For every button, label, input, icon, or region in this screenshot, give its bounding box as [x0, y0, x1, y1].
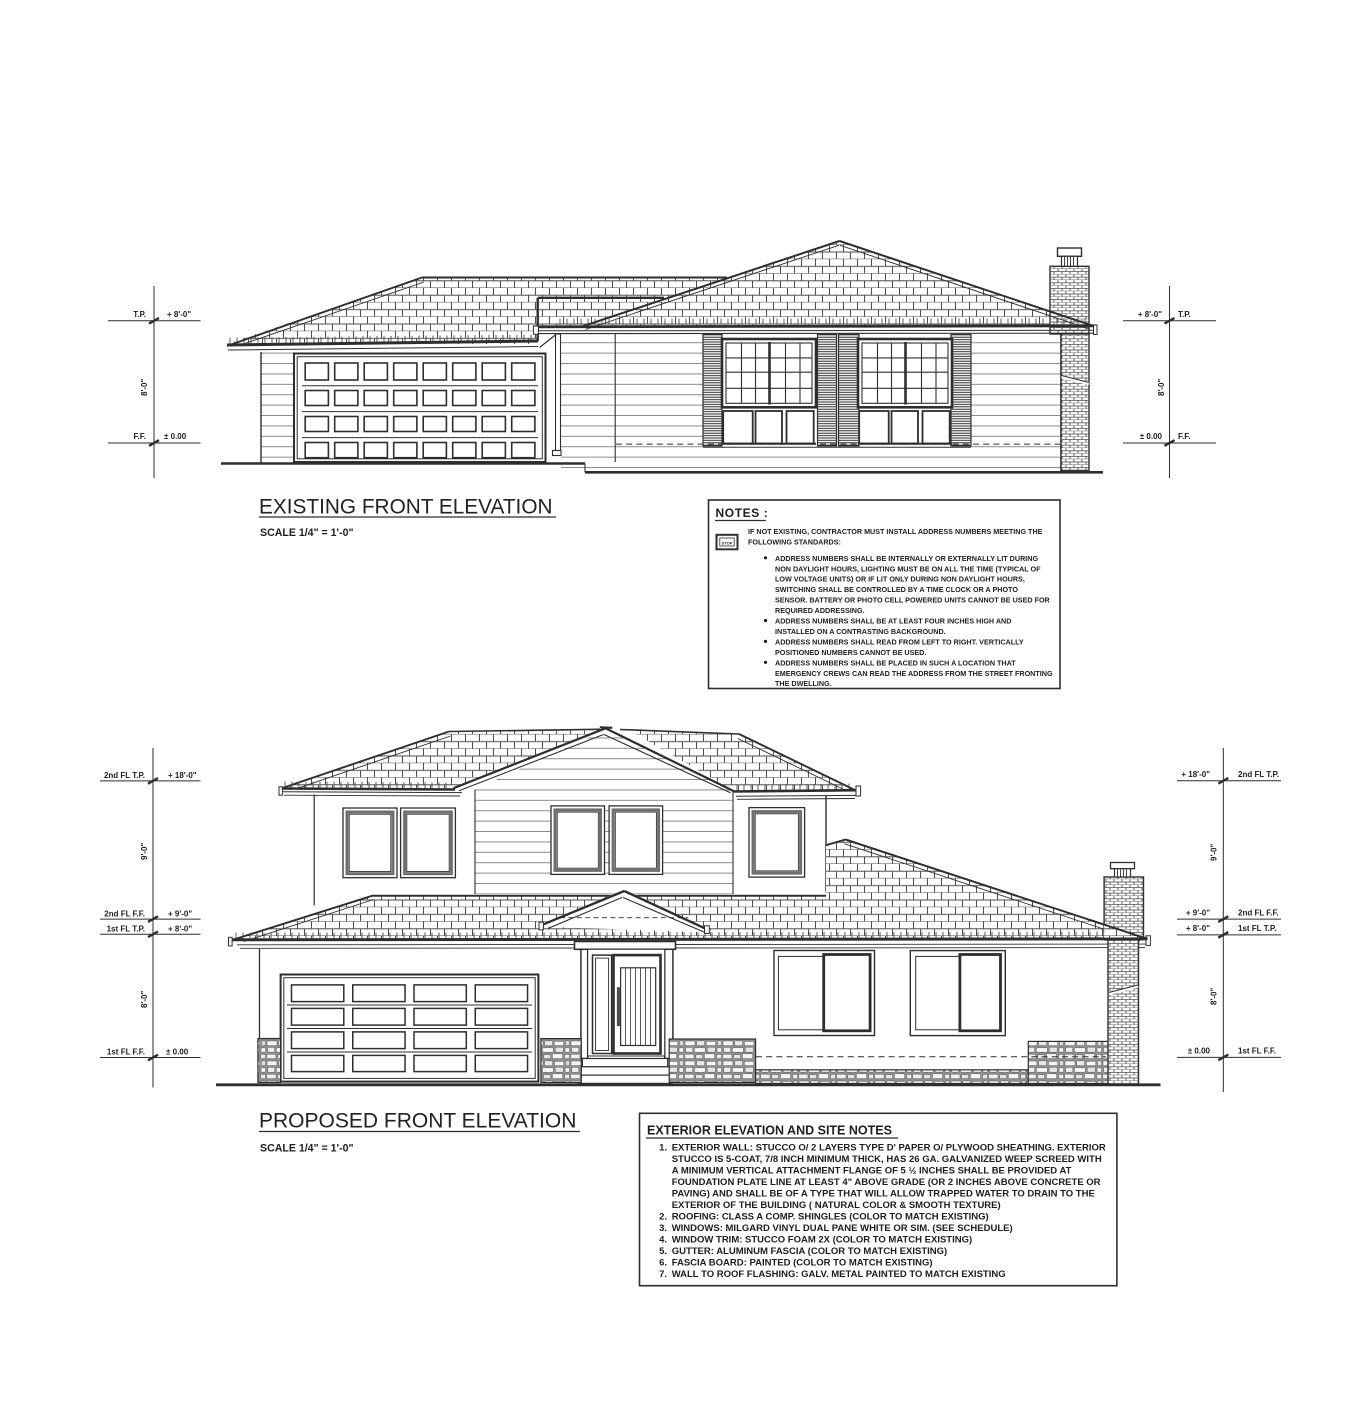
svg-text:+ 8'-0": + 8'-0": [168, 925, 192, 934]
svg-text:PROPOSED FRONT ELEVATION: PROPOSED FRONT ELEVATION: [259, 1109, 576, 1132]
svg-text:9'-0": 9'-0": [140, 843, 149, 860]
svg-text:LOW VOLTAGE UNITS) OR IF LIT O: LOW VOLTAGE UNITS) OR IF LIT ONLY DURING…: [775, 575, 1025, 584]
svg-text:STUCCO IS 5-COAT, 7/8 INCH MIN: STUCCO IS 5-COAT, 7/8 INCH MINIMUM THICK…: [672, 1154, 1102, 1165]
svg-text:ROOFING: CLASS A COMP. SHINGLE: ROOFING: CLASS A COMP. SHINGLES (COLOR T…: [672, 1211, 989, 1222]
svg-text:2nd FL T.P.: 2nd FL T.P.: [1238, 770, 1279, 779]
svg-text:EXTERIOR OF THE BUILDING ( NAT: EXTERIOR OF THE BUILDING ( NATURAL COLOR…: [672, 1200, 1001, 1211]
svg-text:WINDOWS: MILGARD VINYL DUAL PA: WINDOWS: MILGARD VINYL DUAL PANE WHITE O…: [672, 1223, 1013, 1234]
svg-text:9'-0": 9'-0": [1210, 844, 1219, 861]
svg-text:WALL TO ROOF FLASHING: GALV. M: WALL TO ROOF FLASHING: GALV. METAL PAINT…: [672, 1269, 1006, 1280]
svg-text:IF NOT EXISTING, CONTRACTOR MU: IF NOT EXISTING, CONTRACTOR MUST INSTALL…: [748, 527, 1043, 536]
svg-text:WINDOW TRIM: STUCCO FOAM 2X (C: WINDOW TRIM: STUCCO FOAM 2X (COLOR TO MA…: [672, 1234, 972, 1245]
svg-text:+ 18'-0": + 18'-0": [168, 771, 197, 780]
svg-text:POSITIONED NUMBERS CANNOT BE U: POSITIONED NUMBERS CANNOT BE USED.: [775, 648, 926, 657]
svg-text:SCALE 1/4" = 1'-0": SCALE 1/4" = 1'-0": [260, 527, 354, 539]
svg-text:ADDRESS NUMBERS SHALL BE AT LE: ADDRESS NUMBERS SHALL BE AT LEAST FOUR I…: [775, 617, 1011, 626]
svg-text:2nd FL T.P.: 2nd FL T.P.: [104, 771, 145, 780]
svg-text:REQUIRED ADDRESSING.: REQUIRED ADDRESSING.: [775, 606, 865, 615]
svg-text:THE DWELLING.: THE DWELLING.: [775, 679, 832, 688]
svg-text:5.: 5.: [659, 1246, 667, 1257]
svg-text:1st FL T.P.: 1st FL T.P.: [1238, 924, 1276, 933]
svg-text:NOTES :: NOTES :: [716, 506, 769, 520]
svg-text:SWITCHING SHALL BE CONTROLLED: SWITCHING SHALL BE CONTROLLED BY A TIME …: [775, 585, 1018, 594]
svg-text:ADDRESS NUMBERS SHALL BE INTER: ADDRESS NUMBERS SHALL BE INTERNALLY OR E…: [775, 554, 1038, 563]
svg-text:+ 8'-0": + 8'-0": [167, 310, 191, 319]
svg-text:EMERGENCY CREWS CAN READ THE A: EMERGENCY CREWS CAN READ THE ADDRESS FRO…: [775, 669, 1053, 678]
svg-text:SENSOR. BATTERY OR PHOTO CELL: SENSOR. BATTERY OR PHOTO CELL POWERED UN…: [775, 596, 1051, 605]
svg-text:F.F.: F.F.: [134, 432, 146, 441]
svg-text:FASCIA BOARD: PAINTED (COLOR T: FASCIA BOARD: PAINTED (COLOR TO MATCH EX…: [672, 1257, 933, 1268]
svg-text:2.: 2.: [659, 1211, 667, 1222]
svg-text:F.F.: F.F.: [1178, 432, 1190, 441]
svg-text:1st FL T.P.: 1st FL T.P.: [107, 925, 145, 934]
svg-text:ADDRESS NUMBERS SHALL BE PLACE: ADDRESS NUMBERS SHALL BE PLACED IN SUCH …: [775, 658, 1016, 667]
svg-text:± 0.00: ± 0.00: [164, 432, 187, 441]
svg-text:+ 18'-0": + 18'-0": [1181, 770, 1210, 779]
svg-text:1st FL F.F.: 1st FL F.F.: [1238, 1047, 1276, 1056]
svg-text:± 0.00: ± 0.00: [1140, 432, 1163, 441]
svg-text:1.: 1.: [659, 1142, 667, 1153]
svg-text:FOUNDATION PLATE LINE AT LEAST: FOUNDATION PLATE LINE AT LEAST 4" ABOVE …: [672, 1177, 1101, 1188]
svg-text:1st FL F.F.: 1st FL F.F.: [107, 1048, 145, 1057]
svg-text:A MINIMUM VERTICAL ATTACHMENT: A MINIMUM VERTICAL ATTACHMENT FLANGE OF …: [672, 1165, 1072, 1176]
svg-text:FOLLOWING STANDARDS:: FOLLOWING STANDARDS:: [748, 538, 841, 547]
svg-text:3.: 3.: [659, 1223, 667, 1234]
svg-text:7.: 7.: [659, 1269, 667, 1280]
svg-text:EXISTING FRONT ELEVATION: EXISTING FRONT ELEVATION: [259, 496, 553, 519]
svg-text:NON DAYLIGHT HOURS, LIGHTING: NON DAYLIGHT HOURS, LIGHTING MUST BE ON …: [775, 564, 1041, 573]
svg-text:6.: 6.: [659, 1257, 667, 1268]
svg-text:+ 8'-0": + 8'-0": [1138, 310, 1162, 319]
svg-text:EXTERIOR ELEVATION AND SITE NO: EXTERIOR ELEVATION AND SITE NOTES: [647, 1124, 892, 1138]
svg-text:ADDRESS NUMBERS SHALL READ FRO: ADDRESS NUMBERS SHALL READ FROM LEFT TO …: [775, 637, 1024, 646]
svg-text:8'-0": 8'-0": [1157, 379, 1166, 396]
svg-text:4.: 4.: [659, 1234, 667, 1245]
svg-text:STOP: STOP: [722, 540, 733, 545]
svg-text:+ 8'-0": + 8'-0": [1186, 924, 1210, 933]
svg-text:± 0.00: ± 0.00: [1188, 1047, 1211, 1056]
svg-text:+ 9'-0": + 9'-0": [168, 909, 192, 918]
svg-text:T.P.: T.P.: [1178, 310, 1191, 319]
svg-text:EXTERIOR WALL: STUCCO O/ 2 LAY: EXTERIOR WALL: STUCCO O/ 2 LAYERS TYPE D…: [672, 1142, 1106, 1153]
svg-text:SCALE 1/4" = 1'-0": SCALE 1/4" = 1'-0": [260, 1143, 354, 1155]
svg-text:GUTTER: ALUMINUM FASCIA (COLOR: GUTTER: ALUMINUM FASCIA (COLOR TO MATCH …: [672, 1246, 947, 1257]
svg-text:T.P.: T.P.: [133, 310, 146, 319]
svg-text:± 0.00: ± 0.00: [166, 1048, 189, 1057]
svg-text:PAVING) AND SHALL BE OF A TYPE: PAVING) AND SHALL BE OF A TYPE THAT WILL…: [672, 1188, 1095, 1199]
svg-text:8'-0": 8'-0": [140, 379, 149, 396]
svg-text:2nd FL F.F.: 2nd FL F.F.: [104, 909, 145, 918]
svg-text:INSTALLED ON A CONTRASTING BAC: INSTALLED ON A CONTRASTING BACKGROUND.: [775, 627, 946, 636]
svg-text:8'-0": 8'-0": [1210, 988, 1219, 1005]
svg-text:+ 9'-0": + 9'-0": [1186, 908, 1210, 917]
svg-text:8'-0": 8'-0": [140, 991, 149, 1008]
svg-text:2nd FL F.F.: 2nd FL F.F.: [1238, 908, 1279, 917]
